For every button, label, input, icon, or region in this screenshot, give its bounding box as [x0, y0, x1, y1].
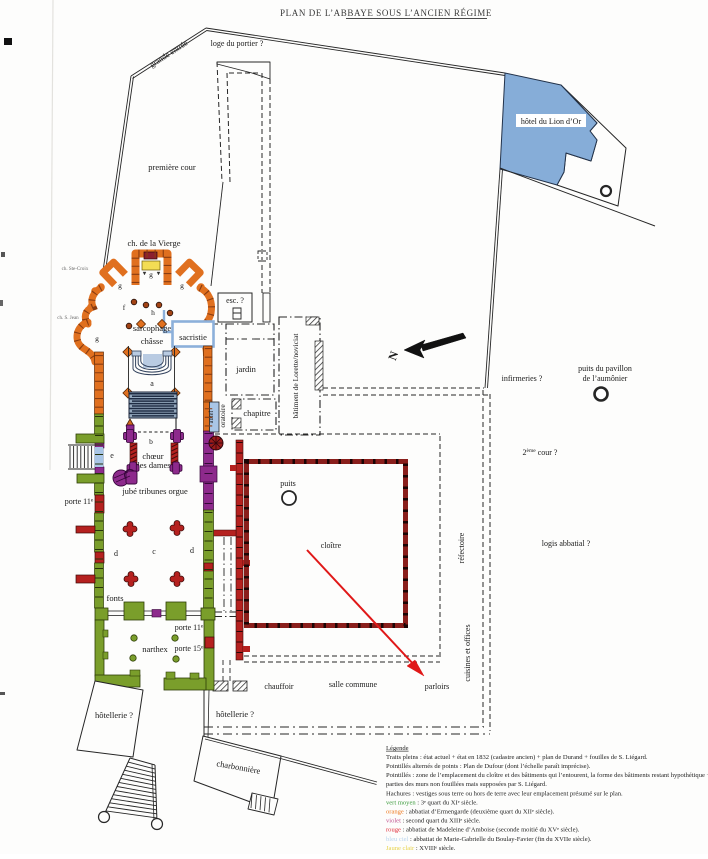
- svg-text:de l’aumônier: de l’aumônier: [583, 374, 628, 383]
- svg-text:cloître: cloître: [321, 541, 342, 550]
- svg-text:première cour: première cour: [148, 162, 196, 172]
- svg-text:salle commune: salle commune: [329, 680, 378, 689]
- svg-text:g: g: [95, 334, 99, 343]
- svg-text:PLAN DE L’ABBAYE SOUS L’ANCIEN: PLAN DE L’ABBAYE SOUS L’ANCIEN RÉGIME: [280, 8, 492, 18]
- svg-text:cuisines et offices: cuisines et offices: [463, 624, 472, 681]
- svg-text:violet : second quart du XIIIe: violet : second quart du XIIIe siècle.: [386, 817, 481, 825]
- svg-text:réfectoire: réfectoire: [457, 532, 466, 563]
- svg-text:porte 11e: porte 11e: [175, 623, 204, 632]
- svg-text:Traits pleins : état actuel +: Traits pleins : état actuel + état en 18…: [386, 754, 648, 761]
- svg-text:Hachures : vestiges sous terre: Hachures : vestiges sous terre ou hors d…: [386, 790, 623, 797]
- svg-text:infirmeries ?: infirmeries ?: [502, 374, 543, 383]
- svg-text:bleu ciel : abbatiat de Marie-: bleu ciel : abbatiat de Marie-Gabrielle …: [386, 836, 592, 843]
- svg-text:bâtiment de Lorette/noviciat: bâtiment de Lorette/noviciat: [291, 333, 300, 419]
- svg-text:ch. de la Vierge: ch. de la Vierge: [128, 238, 181, 248]
- svg-text:puits: puits: [280, 479, 296, 488]
- svg-text:parties des murs non fouillées: parties des murs non fouillées mais supp…: [386, 781, 547, 788]
- svg-text:porte 11e: porte 11e: [65, 497, 94, 506]
- svg-text:jubé tribunes orgue: jubé tribunes orgue: [121, 486, 188, 496]
- svg-text:Pointillés alternés de points: Pointillés alternés de points : Plan de …: [386, 763, 591, 770]
- svg-text:Légende: Légende: [386, 745, 409, 752]
- svg-text:oratoire: oratoire: [218, 404, 227, 428]
- svg-text:puits du pavillon: puits du pavillon: [578, 364, 632, 373]
- svg-text:jardin: jardin: [235, 364, 257, 374]
- svg-text:g: g: [118, 281, 122, 290]
- svg-text:d: d: [114, 549, 118, 558]
- svg-text:d: d: [190, 546, 194, 555]
- svg-text:chapitre: chapitre: [243, 408, 271, 418]
- svg-text:fonts: fonts: [107, 593, 124, 603]
- svg-text:hôtel du Lion d’Or: hôtel du Lion d’Or: [521, 117, 582, 126]
- svg-text:vert moyen : 3e quart du XIe s: vert moyen : 3e quart du XIe siècle.: [386, 799, 478, 807]
- svg-text:g: g: [149, 270, 153, 279]
- svg-text:sacristie: sacristie: [179, 332, 207, 342]
- svg-text:sarcophage: sarcophage: [133, 323, 171, 333]
- svg-text:e: e: [110, 451, 114, 460]
- svg-text:g: g: [180, 281, 184, 290]
- svg-text:loge du portier ?: loge du portier ?: [211, 39, 264, 48]
- svg-text:ch. Ste-Croix: ch. Ste-Croix: [62, 267, 89, 272]
- svg-text:a: a: [150, 379, 154, 388]
- svg-text:porte 15e: porte 15e: [175, 644, 204, 653]
- svg-text:orange : abbatiat d’Ermengarde: orange : abbatiat d’Ermengarde (deuxième…: [386, 808, 555, 816]
- svg-text:des dames: des dames: [135, 460, 170, 470]
- svg-text:narthex: narthex: [142, 644, 168, 654]
- svg-text:chauffoir: chauffoir: [264, 682, 294, 691]
- svg-text:Pointillés : zone de l’emplace: Pointillés : zone de l’emplacement du cl…: [386, 772, 708, 779]
- svg-text:esc. ?: esc. ?: [226, 296, 244, 305]
- svg-text:logis abbatial ?: logis abbatial ?: [542, 539, 591, 548]
- svg-text:parloirs: parloirs: [425, 682, 449, 691]
- svg-text:hôtellerie ?: hôtellerie ?: [95, 710, 133, 720]
- svg-text:h: h: [151, 308, 155, 317]
- svg-text:rouge : abbatiat de Madeleine: rouge : abbatiat de Madeleine d’Amboise …: [386, 826, 580, 834]
- svg-text:Jaune clair : XVIIIe siècle.: Jaune clair : XVIIIe siècle.: [386, 844, 456, 852]
- svg-text:c: c: [152, 547, 156, 556]
- svg-text:b: b: [149, 437, 153, 446]
- svg-text:châsse: châsse: [141, 336, 163, 346]
- svg-text:ch. S. Jean: ch. S. Jean: [57, 316, 79, 321]
- svg-text:hôtellerie ?: hôtellerie ?: [216, 709, 254, 719]
